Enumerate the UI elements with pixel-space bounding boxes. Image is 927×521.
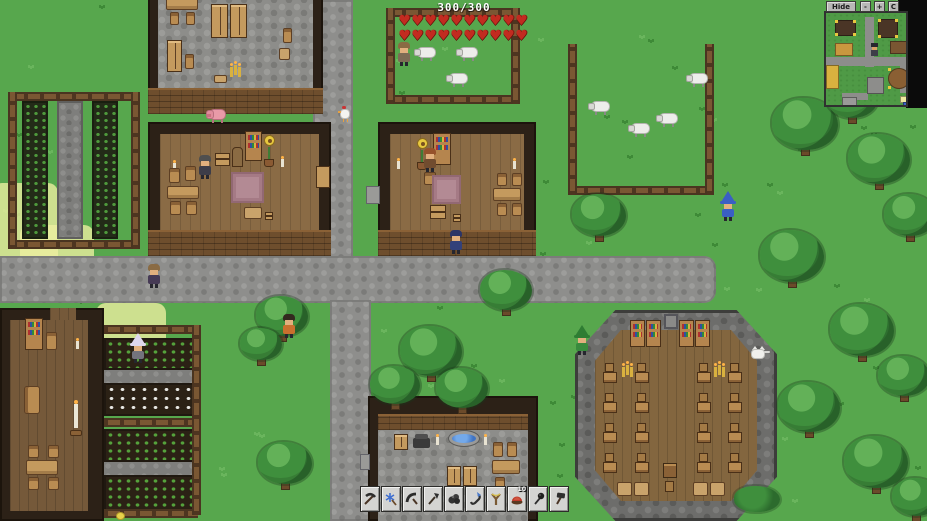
minimap: Hide - + C (820, 0, 927, 113)
minimap-marker-dot (895, 35, 898, 38)
chair (637, 453, 646, 462)
ore-chunk-icon (446, 491, 462, 507)
sheep-legs (463, 58, 465, 61)
grass-tuft (399, 91, 401, 94)
sheep-pen-fence (705, 44, 714, 195)
tree-canopy (572, 194, 626, 236)
grass-tuft (639, 35, 641, 38)
minimap-building-storage-house (835, 20, 856, 36)
desk[interactable] (635, 432, 649, 443)
slingshot-icon (488, 491, 504, 507)
hotbar-slot-pickaxe[interactable] (360, 486, 380, 512)
tree[interactable] (572, 194, 626, 242)
heart-icon: ♥ (502, 29, 515, 43)
grass-tuft (861, 126, 863, 129)
mace-icon (530, 491, 546, 507)
bookshelf[interactable] (695, 320, 710, 347)
desk[interactable] (635, 462, 649, 473)
pot-pie-icon (509, 491, 525, 507)
candle-icon (280, 156, 286, 169)
grass-tuft (221, 473, 223, 476)
cabinet[interactable] (394, 434, 408, 450)
chair (186, 12, 195, 25)
chair (665, 481, 674, 492)
heart-icon: ♥ (411, 14, 424, 28)
chest[interactable] (430, 205, 446, 219)
chair (605, 393, 614, 402)
chair (512, 203, 522, 216)
animal-sheep[interactable] (414, 44, 438, 62)
chair (283, 28, 292, 43)
bush[interactable] (734, 486, 780, 512)
grass-tuft (873, 366, 875, 369)
scythe-icon (404, 491, 420, 507)
building-storage-house (148, 0, 323, 114)
rug (432, 175, 461, 204)
mannequin (232, 147, 243, 167)
south-wall (148, 88, 323, 114)
character-farmer[interactable] (131, 336, 145, 363)
health-hearts-row: ♥♥♥♥♥♥♥♥♥♥ (398, 28, 534, 43)
grass-tuft (471, 364, 473, 367)
grass-tuft (99, 5, 101, 8)
tree-canopy (370, 366, 420, 404)
water-basin[interactable] (448, 430, 480, 447)
chair (185, 166, 196, 181)
body (722, 209, 734, 217)
legs (426, 168, 429, 172)
grass-tuft (28, 65, 30, 68)
tree[interactable] (760, 230, 824, 288)
tree[interactable] (848, 134, 910, 190)
grass-tuft (543, 180, 545, 183)
candelabra (229, 60, 242, 77)
candle-stand (70, 400, 82, 436)
frost-staff-icon (383, 491, 399, 507)
minimap-marker-dot (835, 20, 838, 23)
bookshelf[interactable] (679, 320, 694, 347)
heart-icon: ♥ (437, 29, 450, 43)
desk[interactable] (603, 372, 617, 383)
marker-body (871, 50, 878, 56)
desk[interactable] (728, 372, 742, 383)
chair (730, 453, 739, 462)
minimap-zoom-in-button[interactable]: + (874, 1, 885, 12)
chair (28, 445, 39, 458)
heart-icon: ♥ (437, 14, 450, 28)
hotbar: 10 (360, 486, 569, 512)
heart-icon: ♥ (424, 14, 437, 28)
heart-icon: ♥ (476, 14, 489, 28)
tree[interactable] (258, 442, 312, 490)
chair (169, 168, 180, 183)
table (26, 460, 58, 475)
desk[interactable] (697, 402, 711, 413)
minimap-hide-button[interactable]: Hide (826, 1, 856, 12)
minimap-marker-dot (895, 19, 898, 22)
animal-sheep[interactable] (686, 70, 710, 88)
chair (637, 423, 646, 432)
chest[interactable] (215, 153, 230, 166)
chair (730, 423, 739, 432)
crop-row[interactable] (104, 475, 196, 511)
minimap-building-smithy (867, 77, 884, 94)
desk[interactable] (728, 462, 742, 473)
hammer-icon (551, 491, 567, 507)
chair (28, 477, 39, 490)
grass-tuft (437, 306, 439, 309)
animal-chick[interactable] (116, 508, 140, 521)
legs (285, 334, 288, 338)
vineyard-fence (8, 92, 140, 101)
minimap-building-center-house (878, 19, 898, 38)
heart-icon: ♥ (515, 29, 528, 43)
vine-trellis[interactable] (92, 101, 118, 239)
character-gnome[interactable] (575, 328, 589, 355)
table (166, 0, 198, 10)
chair (507, 442, 517, 457)
chair (48, 445, 59, 458)
chair (605, 453, 614, 462)
farm-path (104, 370, 196, 383)
grass-tuft (550, 401, 552, 404)
hotbar-slot-spear[interactable] (423, 486, 443, 512)
grass-tuft (834, 284, 836, 287)
chair (699, 453, 708, 462)
grass-tuft (219, 467, 221, 470)
tree-canopy (480, 270, 532, 310)
chicken-body (340, 109, 350, 119)
bench (634, 482, 649, 496)
sheep-head (686, 75, 693, 82)
desk[interactable] (603, 462, 617, 473)
tree[interactable] (778, 382, 840, 438)
chair (185, 54, 194, 69)
grass-tuft (672, 66, 674, 69)
chair (730, 393, 739, 402)
building-tavern (0, 308, 104, 521)
chair (512, 173, 522, 186)
bookshelf[interactable] (630, 320, 645, 347)
grass-tuft (622, 120, 624, 123)
character-villager-on-road[interactable] (147, 264, 161, 291)
minimap-marker-dot (853, 20, 856, 23)
body (424, 159, 436, 168)
grass-tuft (381, 329, 383, 332)
bench (279, 48, 290, 60)
minimap-center-button[interactable]: C (888, 1, 899, 12)
grass-tuft (648, 39, 650, 42)
animal-pig[interactable] (206, 106, 230, 124)
chair (186, 201, 197, 215)
candle-icon (483, 434, 489, 447)
minimap-marker-dot (878, 35, 881, 38)
bookshelf[interactable] (245, 131, 262, 161)
heart-icon: ♥ (515, 14, 528, 28)
door-step (360, 454, 370, 470)
desk[interactable] (697, 372, 711, 383)
sunflower-pot (262, 135, 276, 167)
table (492, 460, 520, 474)
bench (693, 482, 708, 496)
grass-tuft (571, 395, 573, 398)
animal-sheep[interactable] (446, 70, 470, 88)
desk[interactable] (728, 402, 742, 413)
spear-icon (425, 491, 441, 507)
farm-path (104, 462, 196, 475)
minimap-marker-dot (888, 68, 891, 71)
sheep-pen-fence (386, 95, 520, 104)
character-indoor-npc-left-house[interactable] (198, 155, 212, 182)
stone-path-row (57, 101, 83, 239)
character-indoor-npc-center-house[interactable] (423, 148, 437, 175)
sheep-head (656, 115, 663, 122)
sheep-head (446, 75, 453, 82)
desk[interactable] (635, 372, 649, 383)
sheep-legs (421, 58, 423, 61)
grappling-hook-icon (467, 491, 483, 507)
sheep-legs (663, 124, 665, 127)
chair (605, 423, 614, 432)
sunflower-head (264, 135, 275, 146)
minimap-building-library (888, 68, 908, 89)
bookshelf[interactable] (25, 318, 43, 350)
chair (637, 363, 646, 372)
crop-row[interactable] (104, 338, 196, 370)
sheep-head (456, 49, 463, 56)
item-count: 10 (518, 486, 526, 493)
candle-icon (512, 158, 518, 171)
tree[interactable] (892, 478, 927, 521)
legs (134, 359, 137, 363)
legs (201, 175, 204, 179)
wardrobe[interactable] (230, 4, 247, 38)
tree[interactable] (884, 194, 927, 242)
minimap-zoom-out-button[interactable]: - (860, 1, 871, 12)
chair (497, 173, 507, 186)
vineyard-fence (8, 240, 140, 249)
animal-cat[interactable] (750, 346, 774, 364)
heart-icon: ♥ (398, 29, 411, 43)
minimap-player-marker (870, 43, 879, 56)
body (450, 241, 462, 250)
table (167, 186, 199, 199)
tree-canopy (884, 194, 927, 236)
desk[interactable] (697, 432, 711, 443)
legs (150, 284, 153, 288)
minimap-marker-dot (878, 19, 881, 22)
chair (730, 363, 739, 372)
hotbar-slot-hammer[interactable] (549, 486, 569, 512)
chair (699, 423, 708, 432)
minimap-unexplored (906, 0, 927, 108)
minimap-canvas[interactable] (824, 11, 908, 107)
animal-chicken[interactable] (338, 106, 362, 124)
legs (724, 217, 727, 221)
road-horizontal (0, 256, 716, 303)
tree[interactable] (878, 356, 927, 402)
chair (170, 12, 179, 25)
animal-sheep[interactable] (628, 120, 652, 138)
legs (452, 250, 455, 254)
heart-icon: ♥ (463, 14, 476, 28)
character-shepherd[interactable] (397, 42, 411, 69)
south-wall (148, 230, 331, 256)
sheep-legs (635, 134, 637, 137)
grass-tuft (254, 432, 256, 435)
tree-canopy (848, 134, 910, 184)
cat-tail (764, 351, 770, 353)
minimap-marker-dot (888, 86, 891, 89)
chick-body (116, 512, 125, 520)
candle-base (70, 430, 82, 436)
crop-row[interactable] (104, 383, 196, 416)
chair (46, 332, 57, 350)
pot (265, 212, 273, 220)
sheep-head (414, 49, 421, 56)
desk[interactable] (728, 432, 742, 443)
cabinet[interactable] (463, 466, 477, 486)
hotbar-slot-grappling-hook[interactable] (465, 486, 485, 512)
tree-canopy (892, 478, 927, 516)
character-orange-villager[interactable] (282, 314, 296, 341)
body (398, 53, 410, 62)
sheep-legs (595, 112, 597, 115)
tree[interactable] (480, 270, 532, 316)
animal-sheep[interactable] (456, 44, 480, 62)
body (283, 325, 295, 334)
chair (605, 363, 614, 372)
minimap-marker-dot (853, 33, 856, 36)
grass-tuft (722, 183, 724, 186)
tree[interactable] (240, 328, 282, 366)
desk[interactable] (603, 432, 617, 443)
heart-icon: ♥ (463, 29, 476, 43)
tree[interactable] (370, 366, 420, 410)
anvil[interactable] (413, 438, 430, 448)
tree[interactable] (830, 304, 894, 362)
tree[interactable] (436, 368, 488, 414)
body (148, 275, 160, 284)
heart-icon: ♥ (489, 29, 502, 43)
podium[interactable] (663, 463, 677, 478)
grass-tuft (695, 213, 697, 216)
crop-row[interactable] (104, 429, 196, 462)
farm-fence (104, 418, 196, 427)
heart-icon: ♥ (424, 29, 437, 43)
heart-icon: ♥ (476, 29, 489, 43)
grass-tuft (559, 443, 561, 446)
desk[interactable] (635, 402, 649, 413)
tree-canopy (258, 442, 312, 484)
bench (617, 482, 632, 496)
tavern-entrance[interactable] (50, 308, 76, 320)
chicken-legs (343, 119, 344, 122)
flower-pot (264, 159, 274, 167)
desk[interactable] (603, 402, 617, 413)
character-player[interactable] (449, 230, 463, 257)
chair (170, 201, 181, 215)
tree-canopy (778, 382, 840, 432)
game-viewport: 300/300 ♥♥♥♥♥♥♥♥♥♥ ♥♥♥♥♥♥♥♥♥♥ 10 Hide - … (0, 0, 927, 521)
wardrobe[interactable] (211, 4, 228, 38)
vine-trellis[interactable] (22, 101, 48, 239)
minimap-marker-dot (907, 68, 908, 71)
hotbar-slot-scythe[interactable] (402, 486, 422, 512)
hotbar-slot-frost-staff[interactable] (381, 486, 401, 512)
animal-sheep[interactable] (588, 98, 612, 116)
heart-icon: ♥ (411, 29, 424, 43)
grass-tuft (712, 243, 714, 246)
minimap-building-marker-blue (903, 102, 908, 107)
minimap-marker-dot (835, 33, 838, 36)
hotbar-slot-mace[interactable] (528, 486, 548, 512)
character-wizard[interactable] (721, 194, 735, 221)
bench (244, 207, 262, 219)
grass-tuft (538, 38, 540, 41)
minimap-building-right-house (890, 41, 907, 54)
pickaxe-icon (362, 491, 378, 507)
heart-icon: ♥ (398, 14, 411, 28)
tree-canopy (878, 356, 927, 396)
door[interactable] (316, 166, 330, 188)
grass-tuft (540, 252, 542, 255)
animal-sheep[interactable] (656, 110, 680, 128)
sheep-legs (453, 84, 455, 87)
desk[interactable] (697, 462, 711, 473)
table (493, 188, 521, 201)
candelabra (621, 360, 634, 377)
hotbar-slot-pot-pie[interactable]: 10 (507, 486, 527, 512)
cabinet[interactable] (447, 466, 461, 486)
chair (699, 393, 708, 402)
candle-icon (435, 434, 441, 447)
hotbar-slot-ore-chunk[interactable] (444, 486, 464, 512)
bench (710, 482, 725, 496)
chair (637, 393, 646, 402)
grass-tuft (767, 183, 769, 186)
sheep-legs (693, 84, 695, 87)
body (576, 343, 588, 351)
candle-icon (75, 338, 81, 351)
grass-tuft (915, 466, 917, 469)
rug (231, 172, 264, 203)
grass-tuft (910, 125, 912, 128)
grass-tuft (259, 434, 261, 437)
cabinet[interactable] (167, 40, 182, 72)
chair (699, 363, 708, 372)
candelabra (713, 360, 726, 377)
library-door[interactable] (664, 314, 678, 329)
vineyard-fence (131, 92, 140, 249)
tree-canopy (760, 230, 824, 282)
building-left-house (148, 122, 331, 256)
hotbar-slot-slingshot[interactable] (486, 486, 506, 512)
interior-brick-wall (378, 414, 528, 430)
chair (493, 442, 503, 457)
tree-canopy (436, 368, 488, 408)
minimap-building-shed (842, 97, 857, 106)
bookshelf[interactable] (646, 320, 661, 347)
tree-canopy (830, 304, 894, 356)
grass-tuft (428, 384, 430, 387)
farm-fence (104, 325, 198, 334)
grass-tuft (627, 155, 629, 158)
health-hearts-row: ♥♥♥♥♥♥♥♥♥♥ (398, 13, 534, 28)
pig-snout (207, 114, 211, 117)
bench (214, 75, 227, 83)
chair (497, 203, 507, 216)
